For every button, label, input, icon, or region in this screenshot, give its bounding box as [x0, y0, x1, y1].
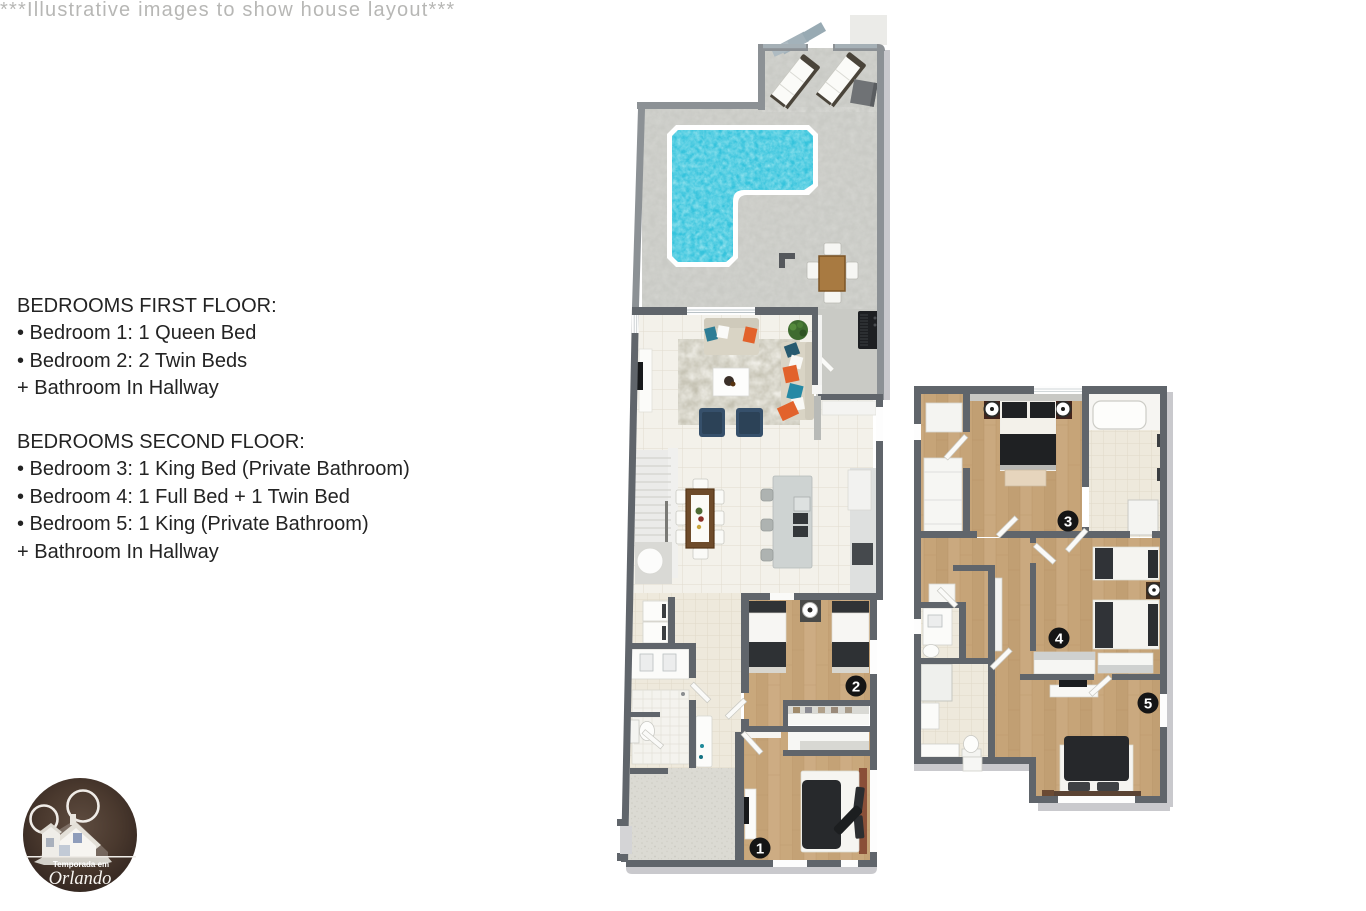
svg-text:4: 4: [1055, 631, 1064, 648]
svg-text:+ Bathroom In Hallway: + Bathroom In Hallway: [17, 377, 219, 399]
svg-text:• Bedroom 1: 1 Queen Bed: • Bedroom 1: 1 Queen Bed: [17, 322, 256, 344]
svg-text:• Bedroom 4: 1 Full Bed + 1 Tw: • Bedroom 4: 1 Full Bed + 1 Twin Bed: [17, 486, 350, 508]
svg-text:Orlando: Orlando: [49, 869, 112, 889]
svg-text:5: 5: [1144, 696, 1152, 713]
svg-text:+ Bathroom In Hallway: + Bathroom In Hallway: [17, 541, 219, 563]
svg-text:***Illustrative images to show: ***Illustrative images to show house lay…: [0, 0, 455, 21]
svg-text:2: 2: [852, 679, 860, 696]
svg-text:Temporada em: Temporada em: [53, 860, 109, 869]
svg-text:• Bedroom 3: 1 King Bed (Priva: • Bedroom 3: 1 King Bed (Private Bathroo…: [17, 458, 410, 480]
svg-text:• Bedroom 2: 2 Twin Beds: • Bedroom 2: 2 Twin Beds: [17, 350, 247, 372]
svg-text:BEDROOMS SECOND FLOOR:: BEDROOMS SECOND FLOOR:: [17, 431, 305, 453]
svg-text:1: 1: [756, 841, 764, 858]
svg-text:• Bedroom 5: 1 King (Private B: • Bedroom 5: 1 King (Private Bathroom): [17, 513, 369, 535]
svg-text:BEDROOMS FIRST FLOOR:: BEDROOMS FIRST FLOOR:: [17, 295, 277, 317]
svg-text:3: 3: [1064, 514, 1072, 531]
